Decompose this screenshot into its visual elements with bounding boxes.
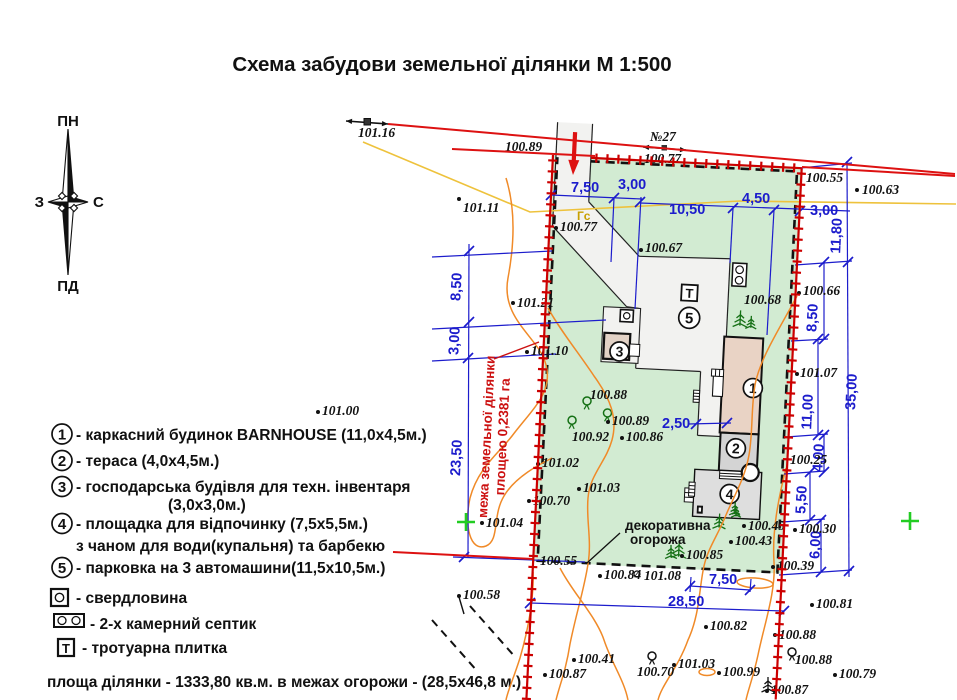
svg-text:5,50: 5,50 [793,485,810,514]
svg-text:3,00: 3,00 [618,177,646,193]
svg-text:101.08: 101.08 [644,568,681,583]
svg-text:- свердловина: - свердловина [76,590,187,607]
svg-text:- площадка для відпочинку (7,5: - площадка для відпочинку (7,5х5,5м.) [76,516,368,533]
svg-text:100.88: 100.88 [779,627,816,642]
svg-text:100.70: 100.70 [637,664,674,679]
svg-text:- парковка на 3 автомашини(11,: - парковка на 3 автомашини(11,5х10,5м.) [76,560,385,577]
svg-text:101.07: 101.07 [800,365,838,380]
svg-text:4,50: 4,50 [742,191,770,207]
svg-text:100.77: 100.77 [560,219,598,234]
svg-text:2: 2 [732,440,741,456]
svg-text:100.87: 100.87 [549,666,587,681]
svg-text:- господарська будівля для тех: - господарська будівля для техн. інвента… [76,479,410,496]
svg-text:100.25: 100.25 [790,452,827,467]
svg-text:101.00: 101.00 [322,403,359,418]
svg-text:- тротуарна плитка: - тротуарна плитка [82,640,227,657]
svg-text:100.79: 100.79 [839,666,876,681]
svg-text:- 2-х камерний септик: - 2-х камерний септик [90,616,257,633]
svg-text:100.85: 100.85 [686,547,723,562]
svg-text:101.16: 101.16 [358,125,395,140]
svg-text:100.81: 100.81 [816,596,853,611]
svg-text:100.30: 100.30 [799,521,836,536]
svg-text:10,50: 10,50 [669,202,705,218]
svg-text:101.04: 101.04 [486,515,523,530]
svg-text:100.99: 100.99 [723,664,760,679]
svg-text:100.88: 100.88 [795,652,832,667]
svg-text:3,00: 3,00 [446,326,463,355]
svg-text:3,00: 3,00 [810,203,838,219]
svg-text:100.55: 100.55 [806,170,843,185]
svg-text:3: 3 [58,479,66,496]
svg-text:101.03: 101.03 [678,656,715,671]
svg-text:ПД: ПД [57,278,79,295]
svg-text:11,80: 11,80 [828,218,846,254]
svg-text:С: С [93,194,104,211]
svg-text:101.10: 101.10 [531,343,568,358]
svg-text:7,50: 7,50 [571,180,599,196]
svg-text:100.66: 100.66 [803,283,840,298]
svg-text:огорожа: огорожа [630,532,686,547]
svg-text:100.41: 100.41 [578,651,615,666]
svg-text:100.84: 100.84 [604,567,641,582]
svg-text:декоративна: декоративна [625,518,711,533]
svg-text:З: З [35,194,44,211]
svg-text:100.68: 100.68 [744,292,781,307]
svg-text:8,50: 8,50 [804,303,821,332]
svg-text:7,50: 7,50 [709,572,737,588]
svg-text:101.03: 101.03 [583,480,620,495]
svg-text:№27: №27 [649,129,677,144]
svg-text:1: 1 [58,426,66,443]
svg-text:100.86: 100.86 [626,429,663,444]
svg-text:(3,0х3,0м.): (3,0х3,0м.) [168,497,246,514]
svg-text:101.11: 101.11 [463,200,499,215]
svg-text:2,50: 2,50 [662,416,690,432]
svg-text:11,00: 11,00 [799,394,817,430]
svg-text:Схема забудови земельної ділян: Схема забудови земельної ділянки М 1:500 [232,53,671,76]
svg-text:8,50: 8,50 [448,272,465,301]
svg-text:100.82: 100.82 [710,618,747,633]
svg-text:100.58: 100.58 [463,587,500,602]
svg-text:ПН: ПН [57,113,79,130]
svg-text:100.88: 100.88 [590,387,627,402]
svg-text:3: 3 [615,343,624,359]
svg-text:- каркасний будинок BARNHOUSE: - каркасний будинок BARNHOUSE (11,0х4,5м… [76,427,427,444]
svg-text:Т: Т [62,641,70,656]
svg-text:4: 4 [58,516,67,533]
svg-text:100.92: 100.92 [572,429,609,444]
svg-text:площа ділянки - 1333,80 кв.м.: площа ділянки - 1333,80 кв.м. в межах ог… [47,674,521,691]
svg-text:100.55: 100.55 [540,553,577,568]
svg-text:Т: Т [685,286,694,301]
svg-text:23,50: 23,50 [448,439,466,476]
svg-text:35,00: 35,00 [843,373,861,410]
svg-text:100.67: 100.67 [645,240,683,255]
svg-text:100.89: 100.89 [612,413,649,428]
svg-text:100.63: 100.63 [862,182,899,197]
svg-text:з чаном для води(купальня) та: з чаном для води(купальня) та барбекю [76,538,385,555]
svg-text:- тераса (4,0х4,5м.): - тераса (4,0х4,5м.) [76,453,219,470]
svg-text:5: 5 [685,310,694,327]
svg-text:101.02: 101.02 [542,455,579,470]
svg-text:28,50: 28,50 [668,594,704,610]
svg-text:5: 5 [58,560,66,577]
svg-text:2: 2 [58,453,66,470]
svg-text:100.43: 100.43 [735,533,772,548]
